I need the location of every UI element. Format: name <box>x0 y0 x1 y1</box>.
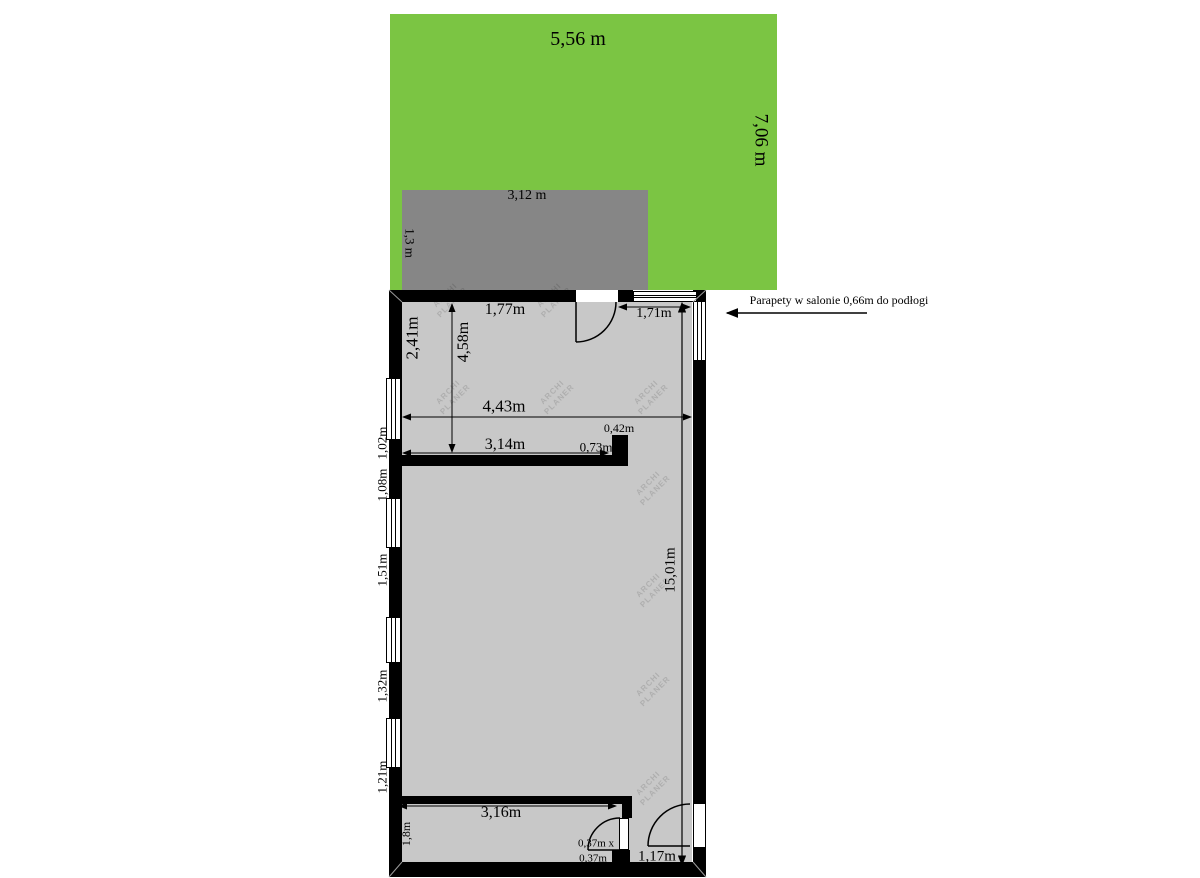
dimension-label-pillar-1: 0,37m x <box>578 839 614 850</box>
dimension-label-left-4: 1,32m <box>376 670 389 703</box>
garden-height-label: 7,06 m <box>752 114 771 167</box>
dimension-label-2-41: 2,41m <box>404 317 421 360</box>
dimension-label-left-1: 1,02m <box>376 427 389 460</box>
dimension-label-0-42: 0,42m <box>604 422 634 434</box>
dimension-label-1-77: 1,77m <box>485 302 525 318</box>
door-swing-top <box>576 302 616 342</box>
dimension-label-left-5: 1,21m <box>376 761 389 794</box>
garden-width-label: 5,56 m <box>550 29 606 49</box>
corner-miters <box>389 290 706 877</box>
dimension-label-3-16: 3,16m <box>481 805 521 821</box>
balcony-depth-label: 1,3 m <box>404 228 417 258</box>
dimension-label-pillar-2: 0,37m <box>579 854 607 865</box>
dimension-label-left-2: 1,08m <box>376 469 389 502</box>
door-swing-entry <box>648 804 690 846</box>
dimension-label-4-43: 4,43m <box>483 398 526 415</box>
annotation-text: Parapety w salonie 0,66m do podłogi <box>750 294 929 306</box>
dimension-label-left-3: 1,51m <box>376 554 389 587</box>
dimension-label-1-8: 1,8m <box>400 822 412 846</box>
dimension-label-1-17: 1,17m <box>638 850 676 865</box>
balcony-width-label: 3,12 m <box>508 189 547 203</box>
dimension-label-1-71: 1,71m <box>636 307 671 321</box>
dimension-label-3-14: 3,14m <box>485 437 525 453</box>
dimension-label-15-01: 15,01m <box>664 547 679 592</box>
dimension-label-0-73: 0,73m <box>580 441 613 454</box>
floor-plan-canvas: ARCHIPLANER ARCHIPLANER ARCHIPLANER ARCH… <box>0 0 1200 878</box>
dimension-label-4-58: 4,58m <box>456 322 472 362</box>
